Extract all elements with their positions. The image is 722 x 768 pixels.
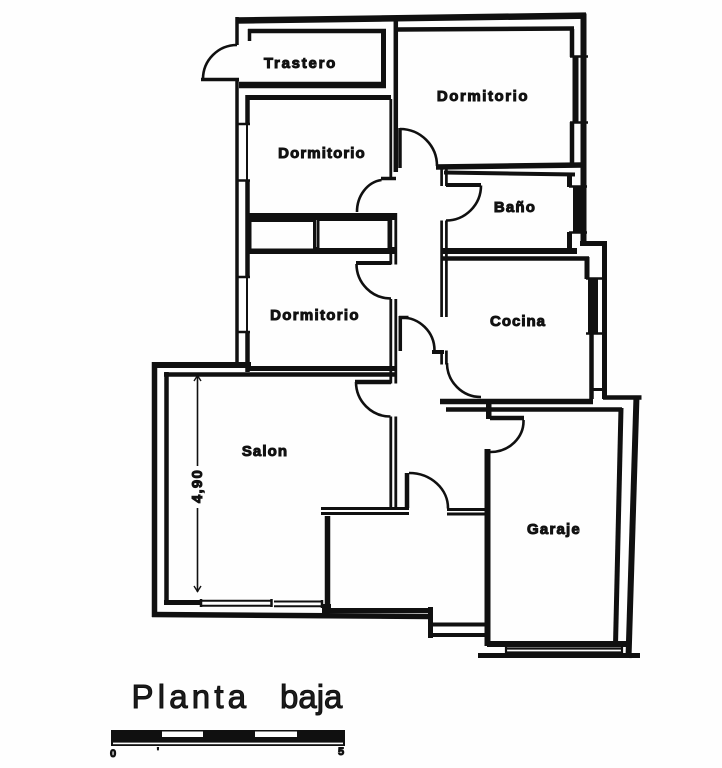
svg-text:0: 0 [110, 748, 116, 760]
svg-text:4,90: 4,90 [189, 469, 206, 503]
svg-text:': ' [157, 746, 159, 756]
svg-text:Dormitorio: Dormitorio [278, 145, 366, 162]
svg-text:baja: baja [280, 678, 343, 715]
svg-text:Dormitorio: Dormitorio [437, 88, 529, 105]
svg-text:Garaje: Garaje [527, 521, 581, 538]
svg-text:Trastero: Trastero [264, 55, 337, 72]
svg-text:5: 5 [338, 746, 344, 758]
svg-text:Baño: Baño [494, 199, 536, 216]
svg-text:Dormitorio: Dormitorio [270, 307, 360, 324]
svg-text:Planta: Planta [132, 678, 251, 715]
svg-text:Cocina: Cocina [490, 313, 546, 330]
svg-text:Salon: Salon [242, 443, 288, 460]
